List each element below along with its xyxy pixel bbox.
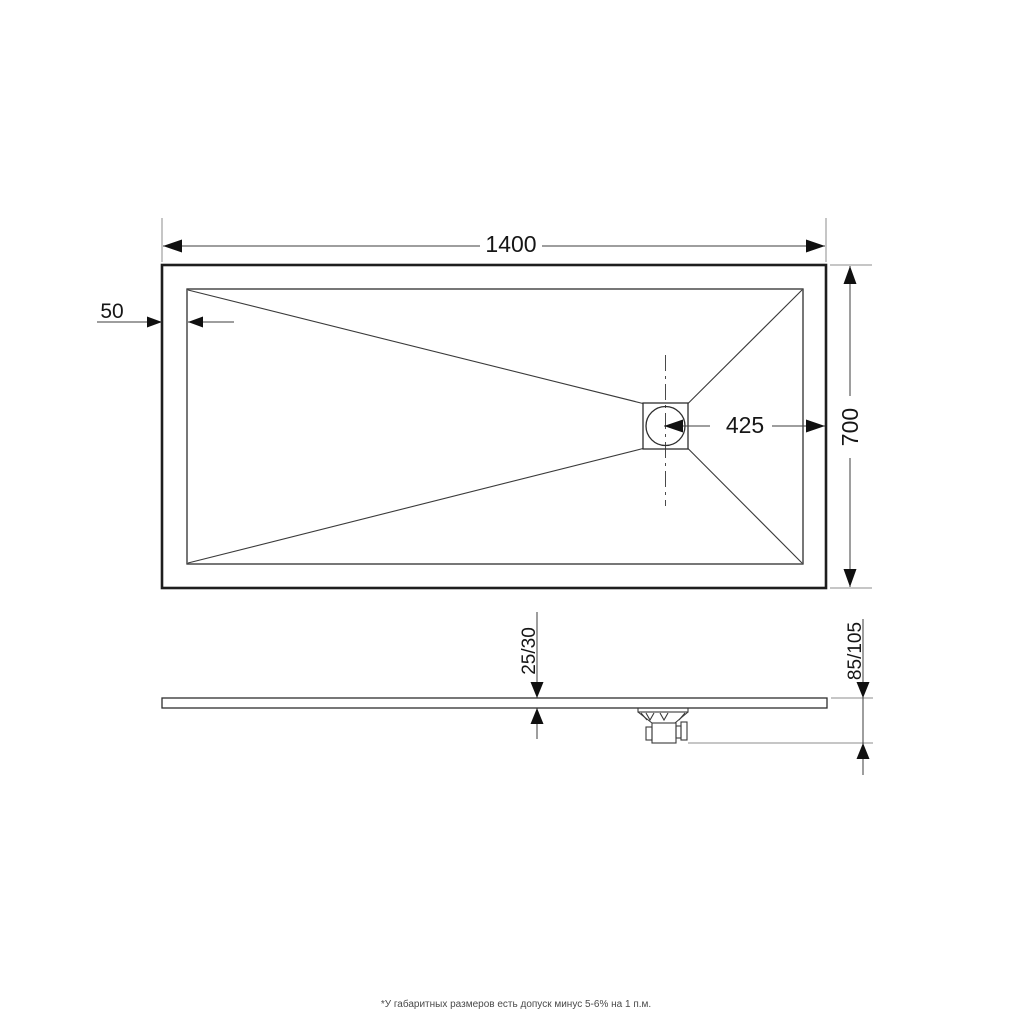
siphon-outlet-flange [681, 722, 687, 740]
drain-trap [638, 708, 688, 743]
side-view: 25/30 85/105 [162, 612, 873, 775]
slope-line-bottom-left [188, 449, 643, 564]
dim-drain-offset-label: 425 [726, 412, 764, 438]
arrowhead-up [531, 708, 544, 724]
dim-border-label: 50 [100, 300, 123, 323]
dim-height-85-105: 85/105 [688, 619, 873, 775]
tray-inner-edge [187, 289, 803, 564]
technical-drawing: 1400 50 425 700 [0, 0, 1028, 1028]
arrowhead-up [857, 743, 870, 759]
dim-length-1400: 1400 [162, 218, 826, 262]
drawing-canvas: 1400 50 425 700 [0, 0, 1028, 1028]
arrowhead-down [531, 682, 544, 698]
arrowhead-up [844, 266, 857, 284]
drain-trap-hatch [660, 713, 668, 720]
arrowhead-down [857, 682, 870, 698]
arrowhead-right [806, 420, 825, 433]
dim-thickness-25-30: 25/30 [519, 612, 544, 739]
dim-border-50: 50 [97, 300, 234, 328]
dim-length-label: 1400 [485, 231, 536, 257]
arrowhead-down [844, 569, 857, 587]
drain-trap-hatch [679, 713, 685, 720]
arrowhead-left [163, 240, 182, 253]
arrowhead-right [147, 317, 162, 328]
arrowhead-left [664, 420, 683, 433]
tolerance-footnote: *У габаритных размеров есть допуск минус… [381, 998, 651, 1010]
dim-width-label: 700 [837, 408, 863, 446]
arrowhead-right [806, 240, 825, 253]
siphon-left-cap [646, 727, 652, 740]
siphon-body [652, 723, 676, 743]
slope-line-bottom-right [688, 449, 802, 564]
arrowhead-left [188, 317, 203, 328]
slope-line-top-left [188, 290, 643, 404]
dim-width-700: 700 [830, 265, 872, 588]
tray-profile [162, 698, 827, 708]
slope-line-top-right [688, 290, 802, 404]
siphon-outlet [676, 726, 681, 738]
dim-thickness-label: 25/30 [519, 627, 540, 675]
plan-view: 1400 50 425 700 [97, 218, 872, 588]
dim-height-label: 85/105 [845, 622, 866, 680]
